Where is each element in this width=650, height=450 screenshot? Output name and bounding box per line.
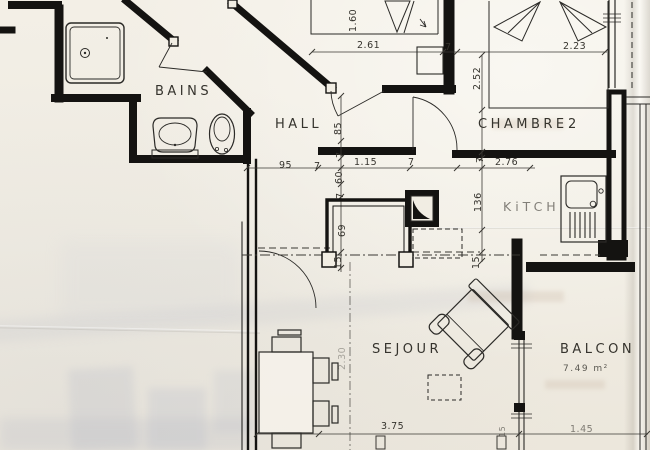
nightstand (417, 47, 443, 74)
dim-15-c: 15 (498, 426, 507, 437)
dim-276: 2.76 (495, 157, 518, 168)
bed-chambre1 (311, 0, 438, 34)
bed-chambre2 (489, 1, 608, 108)
dim-252: 2.52 (472, 67, 483, 90)
room-label-balcon: BALCON (560, 342, 635, 357)
floorplan-scan: BAINS HALL CHAMBRE 2 KiTCH SEJOUR BALCON… (0, 0, 650, 450)
room-label-hall: HALL (275, 117, 322, 132)
sejour-door (259, 251, 316, 308)
dim-261: 2.61 (357, 40, 380, 51)
dim-160: 1.60 (348, 9, 359, 32)
dim-95: 95 (279, 160, 292, 171)
dim-15-b: 15 (471, 256, 482, 269)
dim-7-c: 7 (408, 157, 415, 168)
coffee-table-dashed (428, 375, 461, 400)
room-label-kitch: KiTCH (503, 199, 560, 214)
dim-230: 2.30 (337, 347, 348, 370)
bains-door (159, 43, 207, 72)
toilet (210, 114, 235, 154)
dim-7-b: 7 (335, 192, 346, 199)
dim-69: 69 (337, 224, 348, 237)
dim-15-a: 15 (333, 256, 344, 269)
dining-table (259, 330, 338, 448)
washbasin (152, 118, 198, 158)
door-swings (159, 43, 457, 308)
technical-duct (405, 190, 439, 227)
dim-7-top: 7 (445, 42, 452, 53)
room-label-bains: BAINS (155, 84, 212, 99)
dim-7-hall: 7 (314, 161, 321, 172)
dim-375: 3.75 (381, 421, 404, 432)
dim-7-d: 7 (475, 156, 486, 163)
dim-115: 1.15 (354, 157, 377, 168)
dim-85: 85 (333, 122, 344, 135)
dim-60: 60 (334, 171, 345, 184)
dim-7-a: 7 (335, 151, 346, 158)
shower (66, 23, 124, 83)
chambre2-door (413, 97, 457, 150)
plan-drawing (0, 0, 650, 450)
dim-145: 1.45 (570, 424, 593, 435)
kitchen-sink (561, 176, 606, 242)
dim-136: 136 (473, 192, 484, 212)
chambre1-door (331, 91, 384, 116)
room-label-chambre2-number: 2 (568, 117, 580, 132)
room-label-chambre2: CHAMBRE (478, 117, 568, 132)
cupboard-dashed (413, 229, 462, 258)
room-label-sejour: SEJOUR (372, 342, 442, 357)
balcon-area-label: 7.49 m² (563, 364, 609, 374)
dim-223: 2.23 (563, 41, 586, 52)
